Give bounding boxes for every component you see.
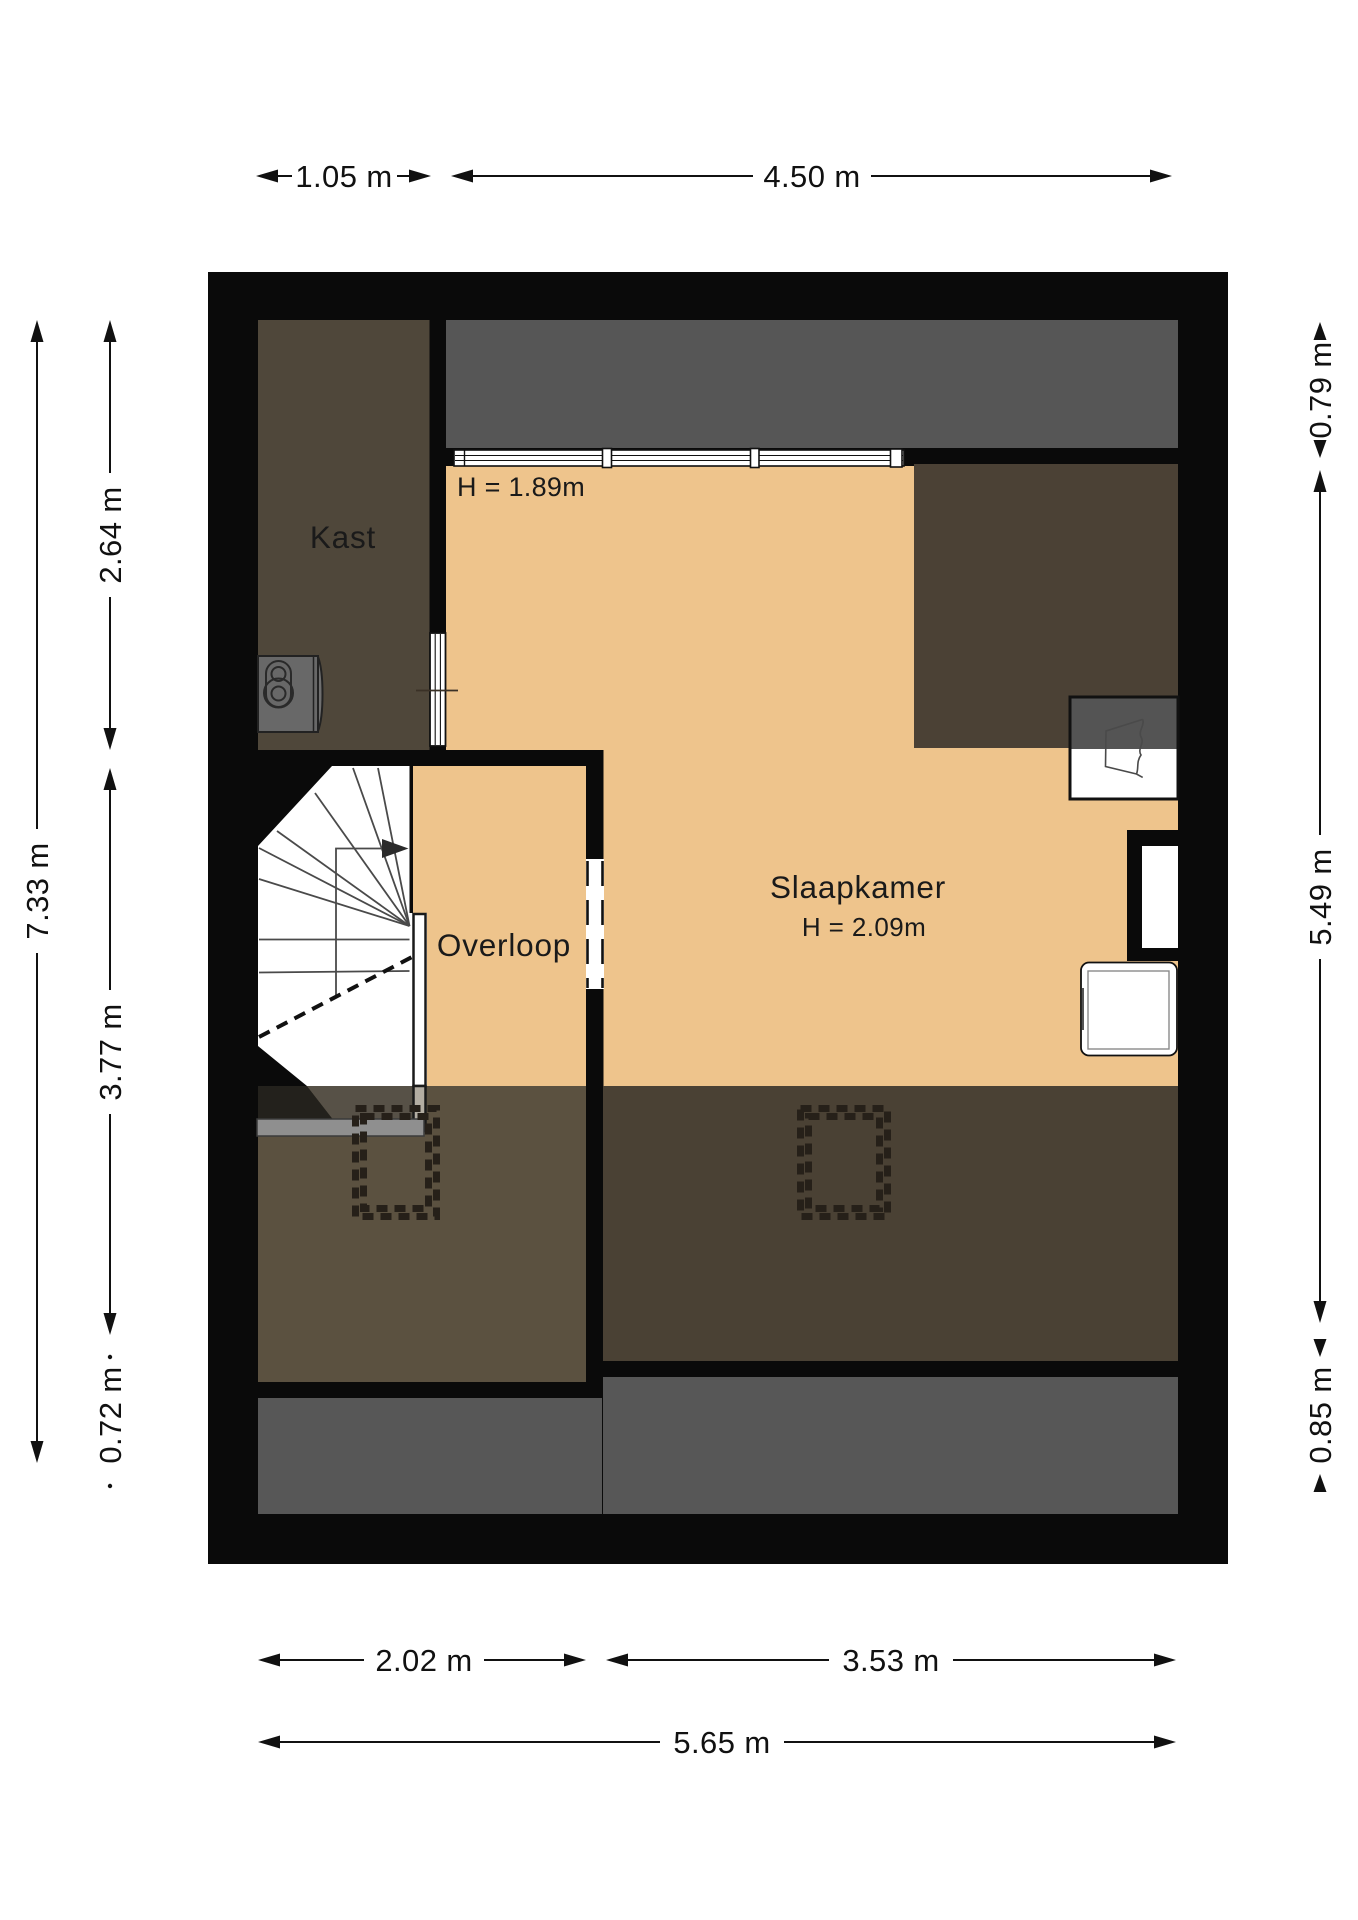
svg-text:Overloop: Overloop (437, 927, 571, 963)
svg-text:Slaapkamer: Slaapkamer (770, 869, 946, 905)
svg-text:Kast: Kast (310, 519, 376, 555)
svg-text:H = 2.09m: H = 2.09m (802, 912, 926, 942)
svg-text:0.79 m: 0.79 m (1303, 341, 1338, 438)
svg-text:0.72 m: 0.72 m (93, 1366, 128, 1463)
svg-text:2.64 m: 2.64 m (93, 486, 128, 583)
svg-text:5.49 m: 5.49 m (1303, 848, 1338, 945)
svg-text:3.77 m: 3.77 m (93, 1003, 128, 1100)
svg-text:0.85 m: 0.85 m (1303, 1366, 1338, 1463)
svg-text:1.05 m: 1.05 m (295, 159, 392, 194)
svg-text:7.33 m: 7.33 m (20, 842, 55, 939)
svg-text:3.53 m: 3.53 m (842, 1643, 939, 1678)
svg-text:4.50 m: 4.50 m (763, 159, 860, 194)
svg-text:5.65 m: 5.65 m (673, 1725, 770, 1760)
svg-text:H = 1.89m: H = 1.89m (457, 472, 585, 502)
svg-text:2.02 m: 2.02 m (375, 1643, 472, 1678)
